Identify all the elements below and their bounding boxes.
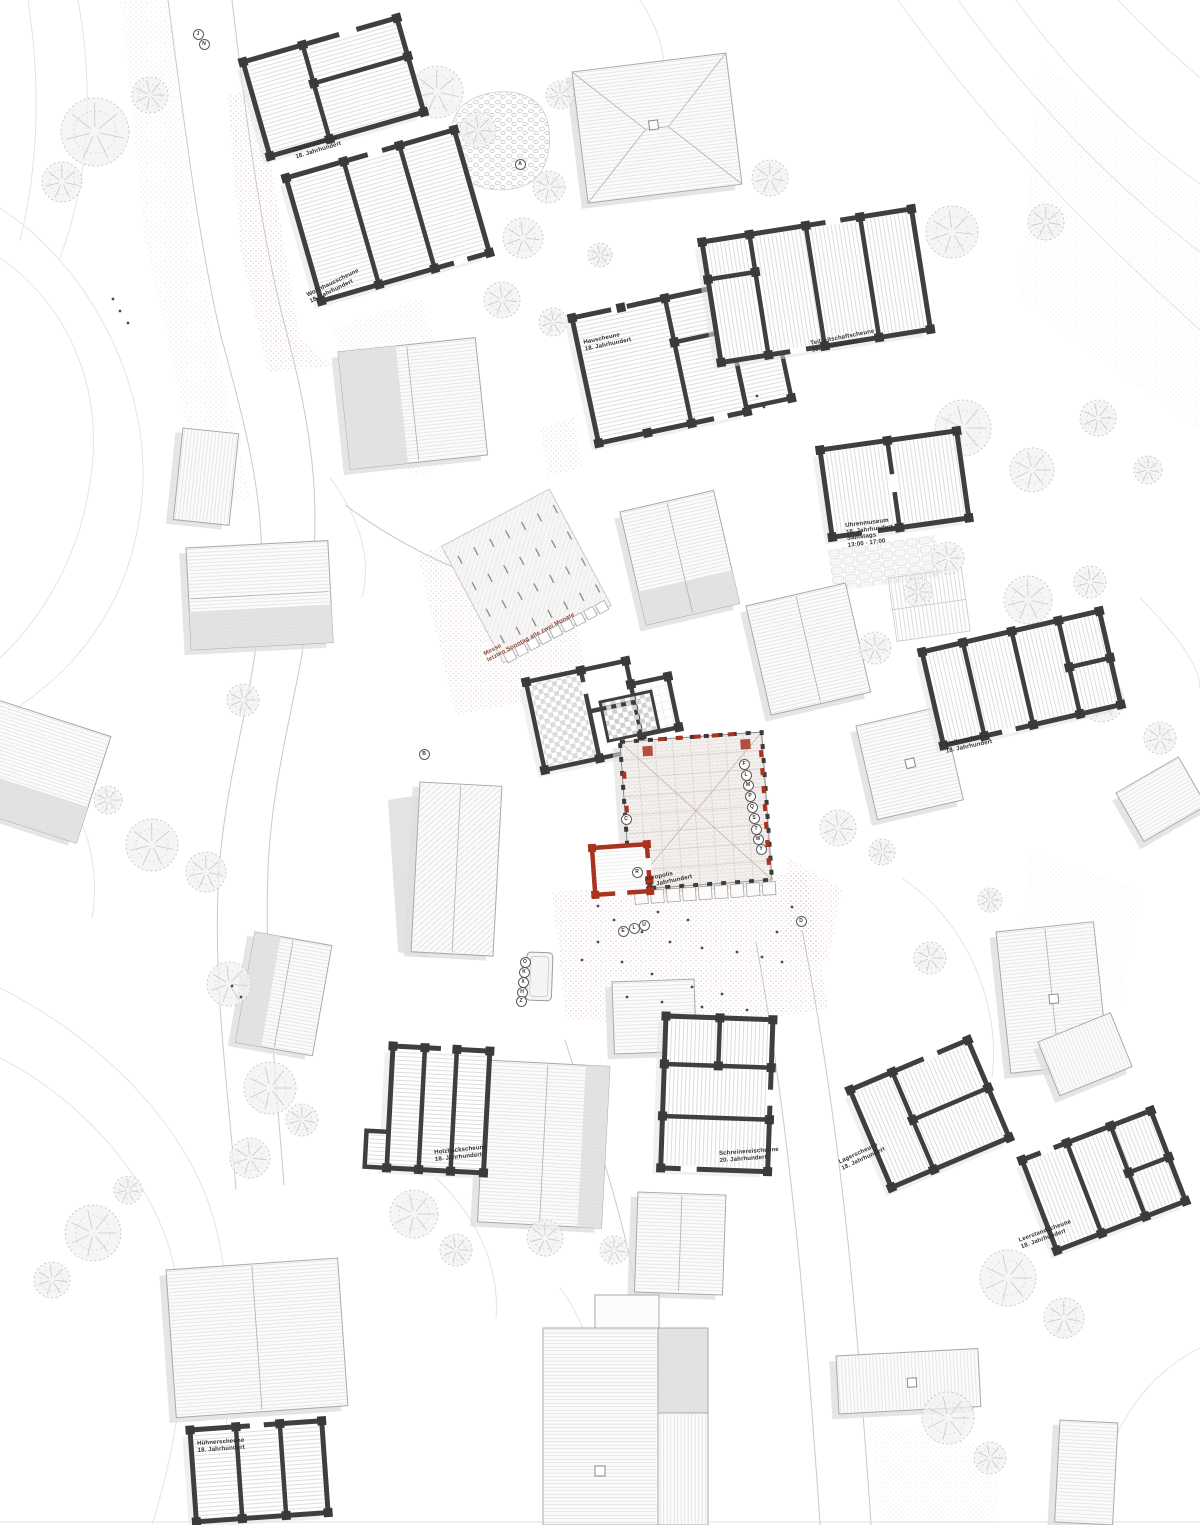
plan-building-lagerscheune — [841, 1034, 1016, 1196]
plan-building-uhrenmuseum — [811, 426, 974, 544]
plan-building-wohnhausscheune — [277, 124, 495, 309]
plan-building-schreinereischeune — [652, 1011, 777, 1178]
plan-building-huehnerscheune — [182, 1416, 333, 1525]
site-plan-drawing: Gartenscheune18. JahrhundertWohnhaussche… — [0, 0, 1200, 1525]
site-plan-canvas — [0, 0, 1200, 1525]
plan-building-teilzeitschaftscheune — [693, 204, 935, 370]
plan-building-leerstandscheune — [1013, 1105, 1192, 1259]
plan-building-holzhackscheune — [364, 1040, 494, 1179]
highlighted-red-room — [588, 840, 655, 899]
trees — [34, 66, 1176, 1474]
akropolis-complex — [517, 648, 776, 906]
